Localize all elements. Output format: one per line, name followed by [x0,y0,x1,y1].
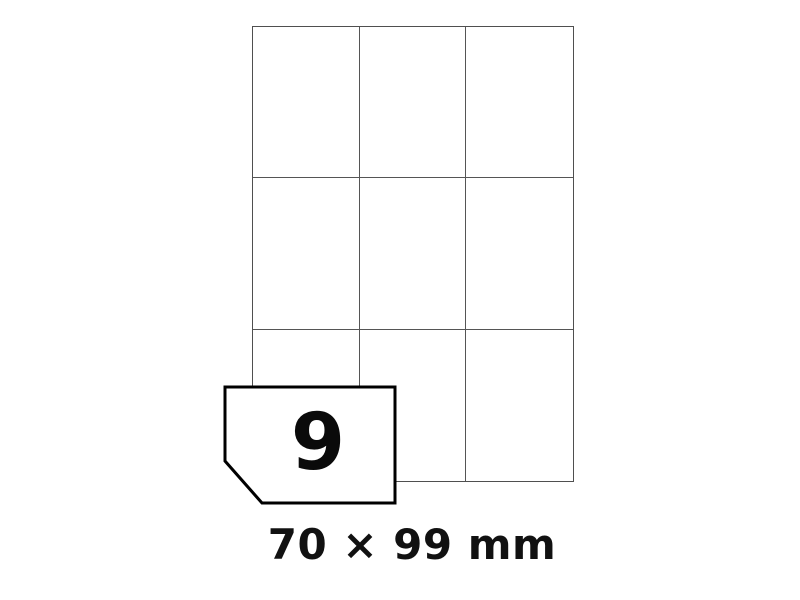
label-layout-illustration: 9 70 × 99 mm [0,0,800,600]
label-cell [360,178,467,329]
label-cell [466,330,573,481]
label-cell [253,27,360,178]
label-cell [466,27,573,178]
label-dimensions-caption: 70 × 99 mm [212,520,612,569]
label-cell [466,178,573,329]
label-cell [360,27,467,178]
label-count: 9 [225,404,395,482]
label-cell [253,178,360,329]
